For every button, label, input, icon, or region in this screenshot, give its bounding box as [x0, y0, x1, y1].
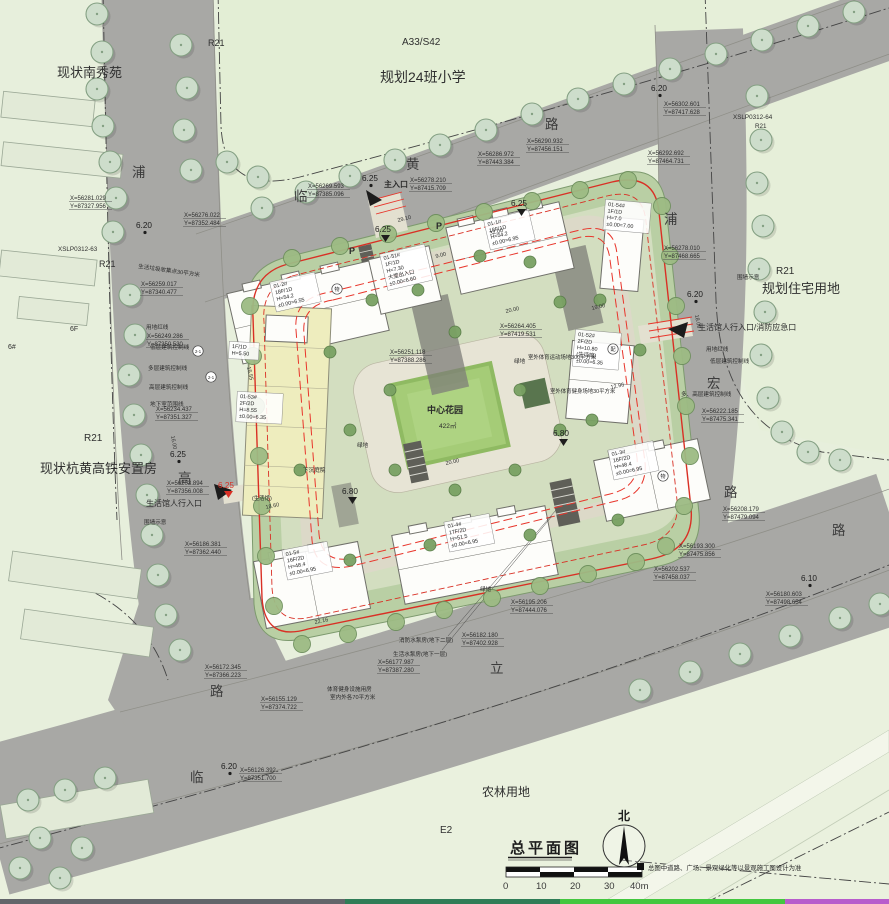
tree-canopy	[612, 514, 624, 526]
parcel-label: 6F	[70, 326, 78, 333]
annotation-label: 低层建筑控制线	[710, 357, 750, 365]
coordinate-x: X=56195.206	[511, 600, 548, 606]
tree	[658, 538, 675, 555]
annotation-label: 下沉庭院	[303, 466, 326, 474]
tree-center	[257, 176, 259, 178]
tree	[634, 344, 646, 356]
coordinate-y: Y=87366.223	[205, 673, 242, 679]
tree-center	[789, 635, 791, 637]
annotation-label: 地下室范围线	[150, 400, 184, 408]
parcel-label: 农林用地	[482, 785, 530, 799]
tree	[266, 598, 283, 615]
spot-elevation-value: 6.10	[801, 574, 817, 583]
annotation-label: 高层建筑控制线	[149, 383, 189, 391]
spot-elevation-value: 6.20	[687, 290, 703, 299]
coordinate-y: Y=87498.654	[766, 600, 803, 606]
coordinate-y: Y=87351.700	[240, 776, 277, 782]
tree	[294, 636, 311, 653]
tree-canopy	[634, 344, 646, 356]
circle-marker: 2-1	[206, 372, 216, 382]
tree-canopy	[586, 414, 598, 426]
tree-center	[669, 68, 671, 70]
tree	[682, 448, 699, 465]
annotation-label: 室外体育运动场地300平方米	[528, 353, 597, 361]
annotation-label: 消防水泵房(地下二层)	[399, 636, 453, 644]
elevation-dot-icon	[177, 460, 180, 463]
tree-canopy	[389, 464, 401, 476]
road-name-label: 宏	[707, 376, 721, 391]
tree-center	[761, 39, 763, 41]
elevation-dot-icon	[694, 300, 697, 303]
coordinate-y: Y=87464.731	[648, 159, 685, 165]
coordinate-y: Y=87468.665	[664, 254, 701, 260]
tree-center	[764, 311, 766, 313]
elevation-dot-icon	[228, 772, 231, 775]
coordinate-y: Y=87362.440	[185, 550, 222, 556]
tree-center	[39, 837, 41, 839]
circle-marker: 2-1	[193, 346, 203, 356]
tree-center	[758, 268, 760, 270]
coordinate-x: X=56292.692	[648, 151, 685, 157]
tree-center	[151, 534, 153, 536]
parcel-label: XSLP0312-64	[733, 114, 773, 121]
tree-center	[133, 414, 135, 416]
coordinate-x: X=56186.381	[185, 542, 222, 548]
building-label: 01-53#2F/2DH=8.55±0.00=6.35	[236, 391, 284, 424]
tree-canopy	[676, 498, 693, 515]
tree	[554, 296, 566, 308]
annotation-label: 绿地	[514, 357, 526, 365]
tree-center	[59, 877, 61, 879]
parcel-label: R21	[84, 433, 103, 444]
road-name-label: 立	[490, 661, 504, 676]
tree-center	[349, 175, 351, 177]
tree-canopy	[284, 250, 301, 267]
spot-elevation-value: 6.80	[553, 429, 569, 438]
tree	[620, 172, 637, 189]
tree-center	[689, 671, 691, 673]
tree-canopy	[658, 538, 675, 555]
coordinate-x: X=56290.932	[527, 139, 564, 145]
tree-canopy	[474, 250, 486, 262]
tree-canopy	[324, 346, 336, 358]
coordinate-x: X=56155.129	[261, 697, 298, 703]
annotation-label: 多、高层建筑控制线	[681, 390, 732, 398]
tree	[366, 294, 378, 306]
annotation-label: 生活馆人行入口/消防应急口	[698, 322, 796, 332]
coordinate-x: X=56193.300	[679, 544, 716, 550]
circle-marker: 物	[332, 284, 342, 294]
tree-center	[112, 231, 114, 233]
tree-center	[19, 867, 21, 869]
circle-marker-text: 物	[334, 286, 339, 293]
road-name-label: 黄	[406, 157, 420, 172]
tree	[388, 614, 405, 631]
tree-center	[781, 431, 783, 433]
tree-canopy	[449, 326, 461, 338]
tree-center	[165, 614, 167, 616]
annotation-label: 绿地	[480, 585, 492, 593]
tree-center	[179, 649, 181, 651]
parcel-label: R21	[755, 123, 767, 130]
tree-center	[183, 129, 185, 131]
tree	[412, 284, 424, 296]
parcel-label: R21	[776, 266, 795, 277]
tree-center	[115, 197, 117, 199]
elevation-dot-icon	[808, 584, 811, 587]
tree-canopy	[668, 298, 685, 315]
tree-center	[531, 113, 533, 115]
tree-center	[140, 454, 142, 456]
tree	[509, 464, 521, 476]
tree	[580, 566, 597, 583]
tree-center	[180, 44, 182, 46]
parcel-label: 6#	[8, 344, 16, 351]
tree	[436, 602, 453, 619]
tree-center	[129, 294, 131, 296]
tree-center	[261, 207, 263, 209]
tree	[258, 548, 275, 565]
tree-center	[739, 653, 741, 655]
scale-label: 10	[536, 881, 547, 892]
circle-marker-text: 物	[660, 473, 665, 480]
coordinate-y: Y=87479.094	[723, 515, 760, 521]
parcel-label: R21	[208, 38, 225, 48]
drawing-note: 总图中道路、广场、景观绿化等以景观施工图设计为准	[648, 863, 802, 872]
circle-marker-text: 2-1	[208, 375, 215, 380]
tree	[242, 298, 259, 315]
tree-canopy	[332, 238, 349, 255]
spot-elevation-value: 6.25	[170, 450, 186, 459]
tree-canopy	[580, 566, 597, 583]
tree	[674, 348, 691, 365]
tree-center	[102, 125, 104, 127]
tree-canopy	[572, 182, 589, 199]
building-label: 01-54#1F/1DH=7.0±0.00=7.00	[603, 199, 651, 233]
tree-center	[96, 88, 98, 90]
tree-canopy	[554, 296, 566, 308]
tree-center	[839, 459, 841, 461]
tree-center	[639, 689, 641, 691]
tree-center	[760, 139, 762, 141]
spot-elevation-value: 6.20	[651, 84, 667, 93]
spot-elevation-value: 6.25	[511, 199, 527, 208]
tree-center	[101, 51, 103, 53]
coordinate-y: Y=87419.531	[500, 332, 537, 338]
note-marker-icon	[637, 863, 644, 870]
tree	[532, 578, 549, 595]
tree-canopy	[682, 448, 699, 465]
coordinate-y: Y=87402.928	[462, 641, 499, 647]
annotation-label: 室外体育健身场地30平方米	[550, 387, 616, 395]
annotation-label: 体育健身设施用房	[327, 685, 372, 693]
coordinate-x: X=56222.185	[702, 409, 739, 415]
tree-canopy	[251, 448, 268, 465]
coordinate-y: Y=87387.280	[378, 668, 415, 674]
tree-center	[146, 494, 148, 496]
tree-canopy	[678, 398, 695, 415]
tree	[344, 424, 356, 436]
tree	[340, 626, 357, 643]
tree	[324, 346, 336, 358]
coordinate-x: X=56286.972	[478, 152, 515, 158]
tree-center	[762, 225, 764, 227]
tree-canopy	[514, 384, 526, 396]
tree-canopy	[366, 294, 378, 306]
tree-canopy	[532, 578, 549, 595]
spot-elevation-value: 6.80	[342, 487, 358, 496]
annotation-label: 绿地	[357, 441, 369, 449]
coordinate-y: Y=87356.008	[167, 489, 204, 495]
annotation-label: 生活馆人行入口	[146, 498, 202, 508]
parcel-label: A33/S42	[402, 37, 441, 48]
tree-center	[623, 83, 625, 85]
north-label: 北	[618, 808, 630, 823]
tree-center	[128, 374, 130, 376]
building-label: 1F/1DH=5.50	[228, 341, 259, 360]
tree-canopy	[294, 636, 311, 653]
tree	[572, 182, 589, 199]
tree	[284, 250, 301, 267]
tree-canopy	[242, 298, 259, 315]
tree	[389, 464, 401, 476]
spot-elevation-value: 6.25	[375, 225, 391, 234]
tree-canopy	[436, 602, 453, 619]
tree-canopy	[524, 256, 536, 268]
coordinate-x: X=56276.022	[184, 213, 221, 219]
tree	[332, 238, 349, 255]
tree	[424, 539, 436, 551]
coordinate-y: Y=87385.096	[308, 192, 345, 198]
coordinate-y: Y=87352.484	[184, 221, 221, 227]
tree-center	[853, 11, 855, 13]
annotation-label: 低层建筑控制线	[150, 343, 190, 351]
road-name-label: 临	[294, 189, 308, 204]
tree-center	[577, 98, 579, 100]
tree	[628, 554, 645, 571]
coordinate-x: X=56180.603	[766, 592, 803, 598]
tree	[612, 514, 624, 526]
tree-canopy	[266, 598, 283, 615]
scale-label: 0	[503, 881, 508, 892]
site-plan-page: X=56281.029Y=87327.956X=56276.022Y=87352…	[0, 0, 889, 904]
annotation-label: 生活水泵房(地下一层)	[393, 650, 447, 658]
tree-canopy	[388, 614, 405, 631]
coordinate-y: Y=87374.722	[261, 705, 298, 711]
annotation-label: 室内外各70平方米	[330, 693, 376, 701]
note-block: 总图中道路、广场、景观绿化等以景观施工图设计为准	[637, 863, 802, 872]
coordinate-y: Y=87351.327	[156, 415, 193, 421]
tree-center	[226, 161, 228, 163]
road-name-label: 路	[545, 117, 559, 132]
road-name-label: 路	[210, 684, 224, 699]
scale-label: 20	[570, 881, 581, 892]
tree-center	[27, 799, 29, 801]
road-name-label: 高	[178, 470, 192, 486]
road-name-label: 路	[832, 523, 846, 538]
parcel-label: 现状杭黄高铁安置房	[40, 461, 157, 476]
tree-center	[190, 169, 192, 171]
scale-label: 40m	[630, 881, 649, 892]
coordinate-y: Y=87444.076	[511, 608, 548, 614]
tree-center	[756, 95, 758, 97]
road-name-label: 浦	[132, 165, 146, 180]
coordinate-y: Y=87327.956	[70, 204, 107, 210]
tree-canopy	[449, 484, 461, 496]
coordinate-x: X=56278.210	[410, 178, 447, 184]
tree	[678, 398, 695, 415]
tree-center	[134, 334, 136, 336]
tree-canopy	[476, 204, 493, 221]
tree-canopy	[344, 424, 356, 436]
annotation-label: 主入口	[384, 179, 408, 189]
tree-canopy	[524, 529, 536, 541]
parcel-label: 规划住宅用地	[762, 281, 840, 296]
road-name-label: 浦	[664, 212, 678, 227]
coordinate-x: X=56302.601	[664, 102, 701, 108]
site-plan-drawing: X=56281.029Y=87327.956X=56276.022Y=87352…	[0, 0, 889, 904]
parcel-label: 现状南秀苑	[57, 65, 122, 80]
parcel-label: E2	[440, 825, 453, 836]
tree	[524, 529, 536, 541]
tree-center	[439, 144, 441, 146]
coordinate-x: X=56172.345	[205, 665, 242, 671]
tree	[449, 484, 461, 496]
road-name-label: 临	[190, 770, 204, 785]
tree-center	[96, 13, 98, 15]
tree-canopy	[412, 284, 424, 296]
coordinate-y: Y=87388.286	[390, 358, 427, 364]
coordinate-x: X=56259.017	[141, 282, 178, 288]
tree-canopy	[344, 554, 356, 566]
tree-center	[879, 603, 881, 605]
coordinate-y: Y=87417.628	[664, 110, 701, 116]
coordinate-x: X=56208.179	[723, 507, 760, 513]
circle-marker-text: 2-1	[195, 349, 202, 354]
tree-center	[109, 161, 111, 163]
coordinate-x: X=56249.286	[147, 334, 184, 340]
tree	[344, 554, 356, 566]
annotation-label: 中心花园	[427, 404, 463, 415]
tree-center	[186, 87, 188, 89]
spot-elevation-value: 6.20	[221, 762, 237, 771]
circle-marker-text: 配	[610, 347, 615, 353]
coordinate-y: Y=87456.151	[527, 147, 564, 153]
scale-label: 30	[604, 881, 615, 892]
coordinate-x: X=56278.010	[664, 246, 701, 252]
tree-center	[807, 25, 809, 27]
tree	[476, 204, 493, 221]
parcel-label: R21	[99, 259, 116, 269]
coordinate-y: Y=87443.384	[478, 160, 515, 166]
coordinate-x: X=56202.537	[654, 567, 691, 573]
coordinate-x: X=56269.593	[308, 184, 345, 190]
coordinate-y: Y=87475.341	[702, 417, 739, 423]
spot-elevation-value: 6.20	[136, 221, 152, 230]
tree-center	[807, 451, 809, 453]
tree	[384, 384, 396, 396]
parcel-label: 规划24班小学	[380, 69, 466, 85]
annotation-label: P	[436, 221, 442, 231]
tree-canopy	[340, 626, 357, 643]
annotation-label: 用地红线	[706, 345, 729, 353]
road-name-label: 路	[724, 485, 738, 500]
tree	[586, 414, 598, 426]
annotation-label: 用地红线	[146, 323, 169, 331]
tree-center	[81, 847, 83, 849]
annotation-label: 围墙示意	[737, 273, 760, 281]
circle-marker: 配	[608, 344, 618, 354]
coordinate-x: X=56182.180	[462, 633, 499, 639]
coordinate-y: Y=87475.856	[679, 552, 716, 558]
tree-center	[64, 789, 66, 791]
tree-canopy	[384, 384, 396, 396]
spot-elevation-value: 6.25	[218, 481, 234, 490]
tree	[474, 250, 486, 262]
coordinate-y: Y=87340.477	[141, 290, 178, 296]
circle-marker: 物	[658, 471, 668, 481]
tree-canopy	[258, 548, 275, 565]
tree	[449, 326, 461, 338]
tree	[668, 298, 685, 315]
annotation-label: 422㎡	[439, 421, 457, 430]
coordinate-x: X=56251.118	[390, 350, 426, 356]
bottom-strip	[0, 899, 889, 904]
tree-center	[715, 53, 717, 55]
tree-center	[756, 182, 758, 184]
coordinate-y: Y=87415.709	[410, 186, 447, 192]
annotation-label: P	[349, 246, 355, 256]
coordinate-x: X=56281.029	[70, 196, 107, 202]
coordinate-x: X=56126.392	[240, 768, 277, 774]
tree-center	[157, 574, 159, 576]
tree-center	[394, 159, 396, 161]
tree-canopy	[424, 539, 436, 551]
elevation-dot-icon	[658, 94, 661, 97]
annotation-label: 多层建筑控制线	[148, 364, 188, 372]
title-block: 总平面图	[508, 839, 582, 860]
tree-canopy	[628, 554, 645, 571]
tree-center	[104, 777, 106, 779]
tree-canopy	[674, 348, 691, 365]
tree	[676, 498, 693, 515]
coordinate-x: X=56177.987	[378, 660, 415, 666]
tree-center	[485, 129, 487, 131]
elevation-dot-icon	[143, 231, 146, 234]
elevation-dot-icon	[369, 184, 372, 187]
building-label-line: H=5.50	[232, 351, 250, 358]
coordinate-x: X=56264.405	[500, 324, 537, 330]
tree	[524, 256, 536, 268]
annotation-label: (生活馆)	[252, 494, 272, 502]
spot-elevation-value: 6.25	[362, 174, 378, 183]
tree-canopy	[509, 464, 521, 476]
tree	[514, 384, 526, 396]
tree-center	[767, 397, 769, 399]
parcel-label: XSLP0312-63	[58, 246, 98, 253]
tree-center	[760, 354, 762, 356]
tree-center	[839, 617, 841, 619]
drawing-title: 总平面图	[510, 839, 582, 857]
tree-canopy	[620, 172, 637, 189]
coordinate-y: Y=87458.037	[654, 575, 691, 581]
tree	[251, 448, 268, 465]
annotation-label: 围墙示意	[144, 518, 167, 526]
